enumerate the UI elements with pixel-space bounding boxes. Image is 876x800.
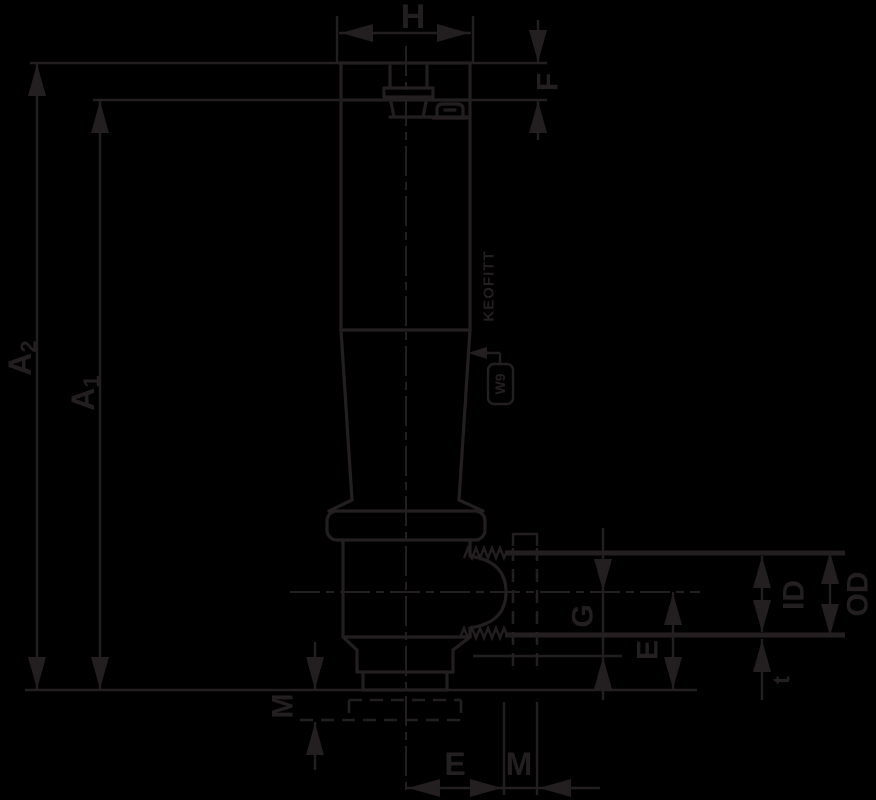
- label-a2: A2: [2, 340, 41, 375]
- top-stud: [384, 66, 433, 117]
- label-od: OD: [842, 572, 875, 617]
- label-e-right: E: [632, 640, 665, 660]
- body-marking: KEOFITT: [481, 250, 498, 321]
- technical-drawing: W9 H F A2 A1 M G E ID OD t E M KEOFITT: [0, 0, 876, 800]
- label-t: t: [769, 676, 796, 684]
- label-id: ID: [778, 580, 811, 610]
- extension-lines: [25, 16, 697, 795]
- label-f: F: [532, 73, 565, 91]
- label-m-bottom: M: [506, 746, 533, 782]
- part-outline: [327, 63, 507, 690]
- arrowheads: [28, 24, 839, 797]
- flag-callout: W9: [468, 347, 513, 404]
- label-a1: A1: [65, 375, 104, 410]
- label-e-bottom: E: [444, 746, 465, 782]
- centerlines: [290, 46, 700, 796]
- bore-bracket: [513, 534, 537, 546]
- drawing-canvas: W9 H F A2 A1 M G E ID OD t E M KEOFITT: [0, 0, 876, 800]
- label-g: G: [567, 604, 600, 627]
- flag-label: W9: [492, 373, 508, 394]
- thread-crests-bottom: [460, 628, 507, 638]
- label-m-left: M: [267, 694, 300, 719]
- hidden-lines: [300, 534, 537, 720]
- label-h: H: [401, 0, 426, 36]
